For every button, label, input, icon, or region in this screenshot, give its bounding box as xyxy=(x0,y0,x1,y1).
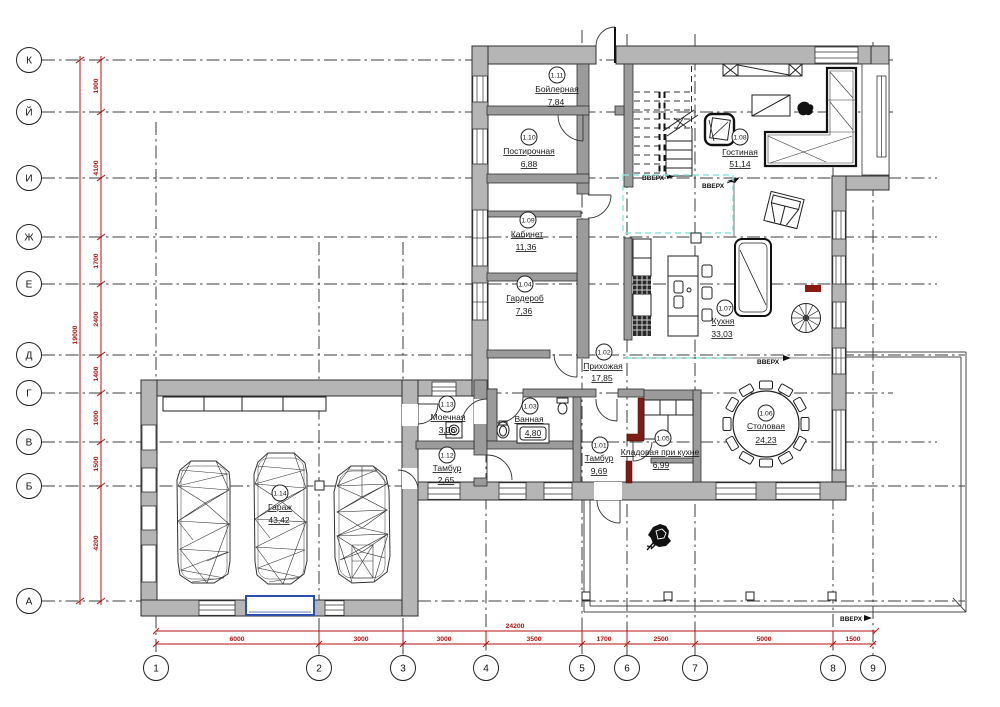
svg-text:В: В xyxy=(26,438,33,449)
svg-text:7,36: 7,36 xyxy=(516,306,533,316)
svg-text:А: А xyxy=(26,597,33,608)
svg-text:И: И xyxy=(25,174,32,185)
svg-text:5: 5 xyxy=(579,664,585,675)
svg-text:1.12: 1.12 xyxy=(440,453,453,460)
svg-text:1.03: 1.03 xyxy=(523,404,536,411)
svg-text:2500: 2500 xyxy=(653,636,668,643)
svg-text:3,06: 3,06 xyxy=(439,425,456,435)
svg-text:1.10: 1.10 xyxy=(522,135,535,142)
svg-text:Г: Г xyxy=(26,389,32,400)
svg-text:1400: 1400 xyxy=(93,366,100,381)
svg-text:19000: 19000 xyxy=(72,325,79,344)
svg-text:2,65: 2,65 xyxy=(438,475,455,485)
svg-text:1500: 1500 xyxy=(93,456,100,471)
svg-text:2400: 2400 xyxy=(93,311,100,326)
svg-text:ВВЕРХ: ВВЕРХ xyxy=(702,183,725,190)
svg-text:1.14: 1.14 xyxy=(273,491,286,498)
svg-text:1.13: 1.13 xyxy=(440,402,453,409)
svg-text:4: 4 xyxy=(483,664,489,675)
svg-text:1.01: 1.01 xyxy=(593,443,606,450)
svg-text:3500: 3500 xyxy=(526,636,541,643)
svg-text:3: 3 xyxy=(400,664,406,675)
svg-text:1.07: 1.07 xyxy=(718,306,731,313)
svg-text:33,03: 33,03 xyxy=(711,329,733,339)
svg-text:Й: Й xyxy=(25,106,32,119)
svg-text:Постирочная: Постирочная xyxy=(503,146,555,156)
svg-text:6,88: 6,88 xyxy=(521,159,538,169)
svg-text:11,36: 11,36 xyxy=(516,242,537,252)
svg-text:4100: 4100 xyxy=(93,160,100,175)
svg-text:1: 1 xyxy=(153,664,159,675)
svg-text:24,23: 24,23 xyxy=(755,435,777,445)
svg-text:43,42: 43,42 xyxy=(268,515,290,525)
svg-text:К: К xyxy=(26,56,32,67)
svg-text:Прихожая: Прихожая xyxy=(583,361,623,371)
svg-text:1700: 1700 xyxy=(93,253,100,268)
svg-text:Тамбур: Тамбур xyxy=(585,453,614,463)
svg-text:1.04: 1.04 xyxy=(518,282,531,289)
svg-text:17,85: 17,85 xyxy=(591,373,613,383)
svg-text:3000: 3000 xyxy=(353,636,368,643)
svg-text:3000: 3000 xyxy=(436,636,451,643)
svg-text:4200: 4200 xyxy=(93,535,100,550)
svg-text:Кладовая при кухне: Кладовая при кухне xyxy=(621,447,700,457)
svg-text:6,99: 6,99 xyxy=(653,460,670,470)
svg-text:2: 2 xyxy=(316,664,322,675)
svg-text:Д: Д xyxy=(26,351,33,362)
svg-text:1.09: 1.09 xyxy=(521,218,534,225)
svg-text:Кабинет: Кабинет xyxy=(511,229,543,239)
svg-text:1.08: 1.08 xyxy=(733,135,746,142)
svg-text:9,69: 9,69 xyxy=(591,466,608,476)
svg-text:Ж: Ж xyxy=(24,233,34,244)
svg-text:24200: 24200 xyxy=(506,623,525,630)
svg-text:1000: 1000 xyxy=(93,410,100,425)
svg-text:Е: Е xyxy=(26,280,33,291)
svg-text:Гардероб: Гардероб xyxy=(506,293,544,303)
svg-text:1.02: 1.02 xyxy=(597,350,610,357)
svg-text:8: 8 xyxy=(830,664,836,675)
svg-text:1500: 1500 xyxy=(845,636,860,643)
svg-text:5000: 5000 xyxy=(756,636,771,643)
svg-text:1700: 1700 xyxy=(596,636,611,643)
svg-text:4,80: 4,80 xyxy=(525,428,542,438)
svg-text:Кухня: Кухня xyxy=(712,316,735,326)
svg-text:7: 7 xyxy=(692,664,698,675)
svg-text:6000: 6000 xyxy=(229,636,244,643)
svg-text:6: 6 xyxy=(624,664,630,675)
svg-text:ВВЕРХ: ВВЕРХ xyxy=(757,359,780,366)
svg-text:Тамбур: Тамбур xyxy=(433,463,462,473)
svg-text:Б: Б xyxy=(26,482,33,493)
svg-text:1.11: 1.11 xyxy=(551,73,564,80)
svg-text:1.06: 1.06 xyxy=(759,411,772,418)
svg-text:Гостиная: Гостиная xyxy=(722,147,758,157)
svg-text:Ванная: Ванная xyxy=(514,414,544,424)
svg-text:51,14: 51,14 xyxy=(729,159,751,169)
svg-text:Бойлерная: Бойлерная xyxy=(535,84,579,94)
svg-text:1900: 1900 xyxy=(93,78,100,93)
svg-text:7,84: 7,84 xyxy=(548,97,565,107)
svg-text:Моечная: Моечная xyxy=(431,412,466,422)
svg-text:Столовая: Столовая xyxy=(747,421,785,431)
svg-text:ВВЕРХ: ВВЕРХ xyxy=(840,616,863,623)
svg-text:Гараж: Гараж xyxy=(268,502,292,512)
svg-text:1.05: 1.05 xyxy=(656,436,669,443)
svg-text:9: 9 xyxy=(870,664,876,675)
svg-text:ВВЕРХ: ВВЕРХ xyxy=(642,175,665,182)
